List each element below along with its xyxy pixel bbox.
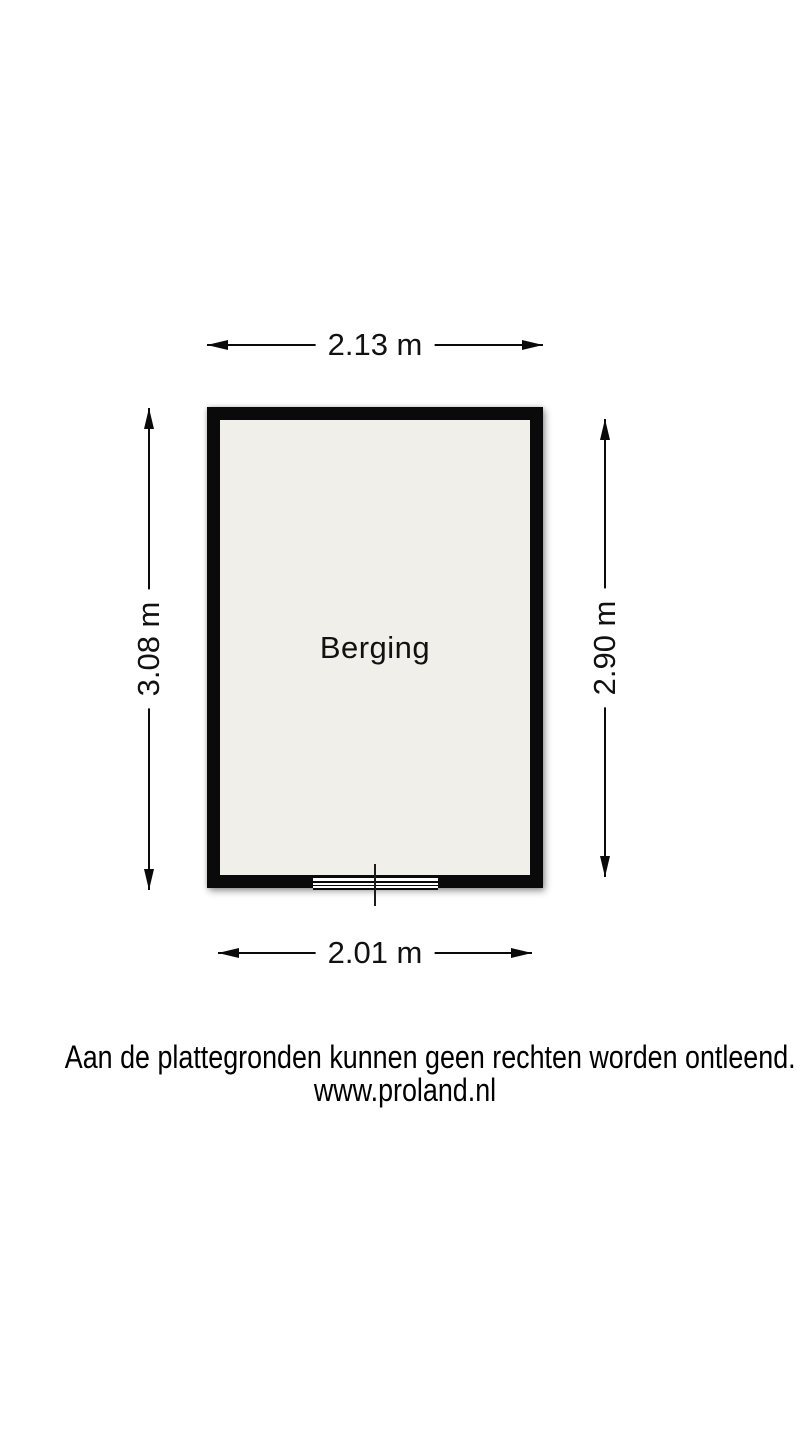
arrowhead-up-icon xyxy=(144,408,154,429)
dimension-left-label: 3.08 m xyxy=(131,590,167,709)
dimension-right-height: 2.90 m xyxy=(594,419,616,877)
website-url: www.proland.nl xyxy=(65,1074,745,1107)
arrowhead-down-icon xyxy=(600,856,610,877)
dimension-top-width: 2.13 m xyxy=(207,334,543,356)
dimension-bottom-width: 2.01 m xyxy=(218,942,532,964)
arrowhead-right-icon xyxy=(522,340,543,350)
footer-disclaimer: Aan de plattegronden kunnen geen rechten… xyxy=(0,1041,810,1107)
arrowhead-down-icon xyxy=(144,869,154,890)
floorplan-canvas: 2.13 m 3.08 m 2.90 m Berging 2.01 m Aan … xyxy=(0,0,810,1440)
arrowhead-left-icon xyxy=(218,948,239,958)
dimension-top-label: 2.13 m xyxy=(316,327,435,363)
disclaimer-text: Aan de plattegronden kunnen geen rechten… xyxy=(65,1041,745,1074)
arrowhead-right-icon xyxy=(511,948,532,958)
arrowhead-left-icon xyxy=(207,340,228,350)
dimension-bottom-label: 2.01 m xyxy=(316,935,435,971)
room-berging: Berging xyxy=(207,407,543,888)
room-label: Berging xyxy=(320,630,430,666)
dimension-left-height: 3.08 m xyxy=(138,408,160,890)
arrowhead-up-icon xyxy=(600,419,610,440)
dimension-right-label: 2.90 m xyxy=(587,589,623,708)
window-center-tick xyxy=(374,864,376,906)
